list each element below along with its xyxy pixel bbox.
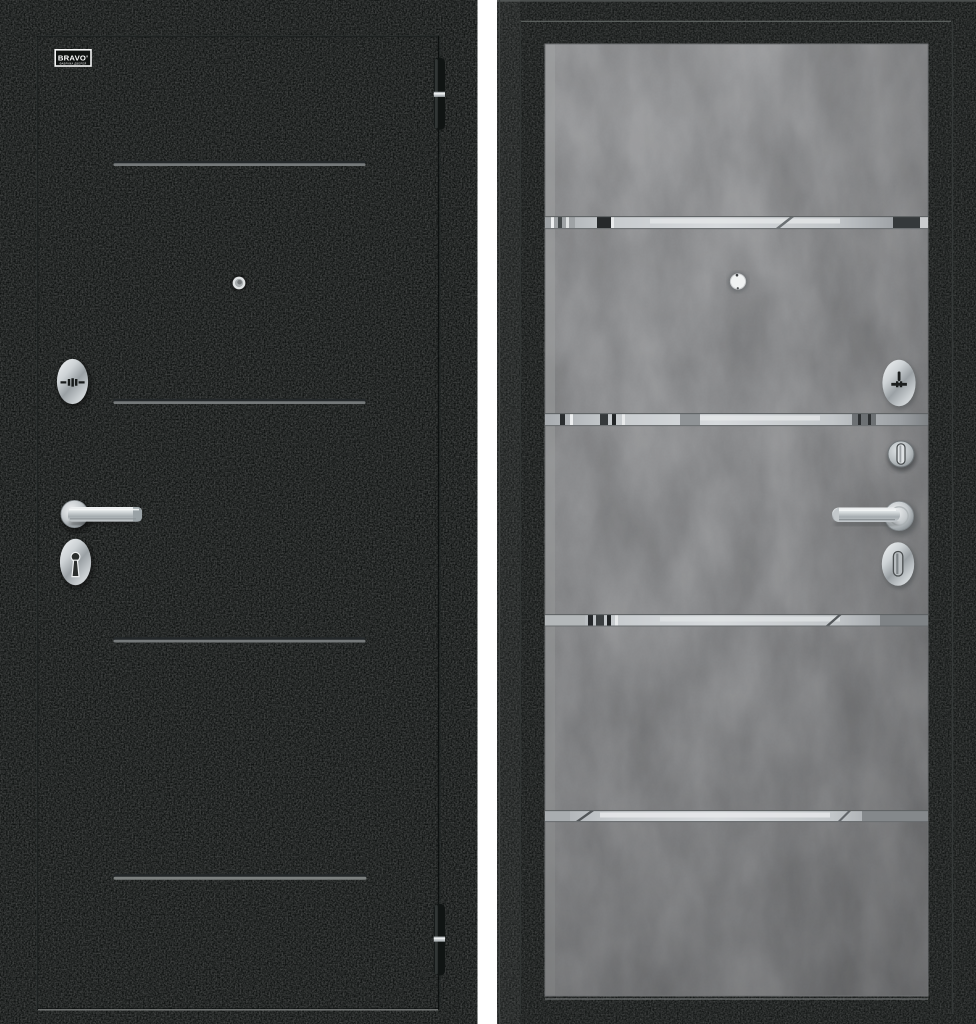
- svg-text:ФАБРИКА ДВЕРЕЙ: ФАБРИКА ДВЕРЕЙ: [60, 61, 87, 65]
- svg-text:BRAVO': BRAVO': [58, 54, 88, 63]
